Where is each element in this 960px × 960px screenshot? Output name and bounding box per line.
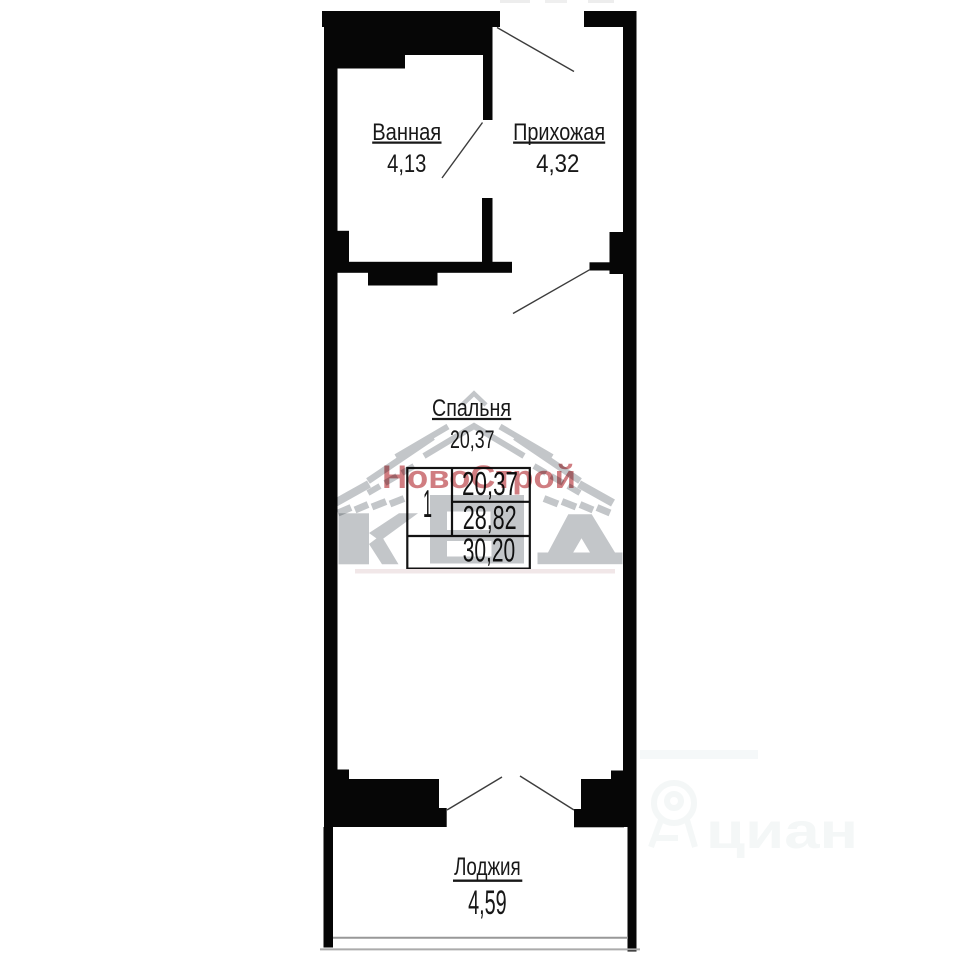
svg-text:4,32: 4,32	[536, 150, 579, 178]
svg-text:циан: циан	[706, 803, 858, 859]
svg-text:Лоджия: Лоджия	[454, 853, 521, 881]
svg-text:4,13: 4,13	[387, 150, 426, 178]
svg-text:НовоСтрой: НовоСтрой	[382, 459, 576, 495]
svg-text:4,59: 4,59	[468, 884, 507, 922]
